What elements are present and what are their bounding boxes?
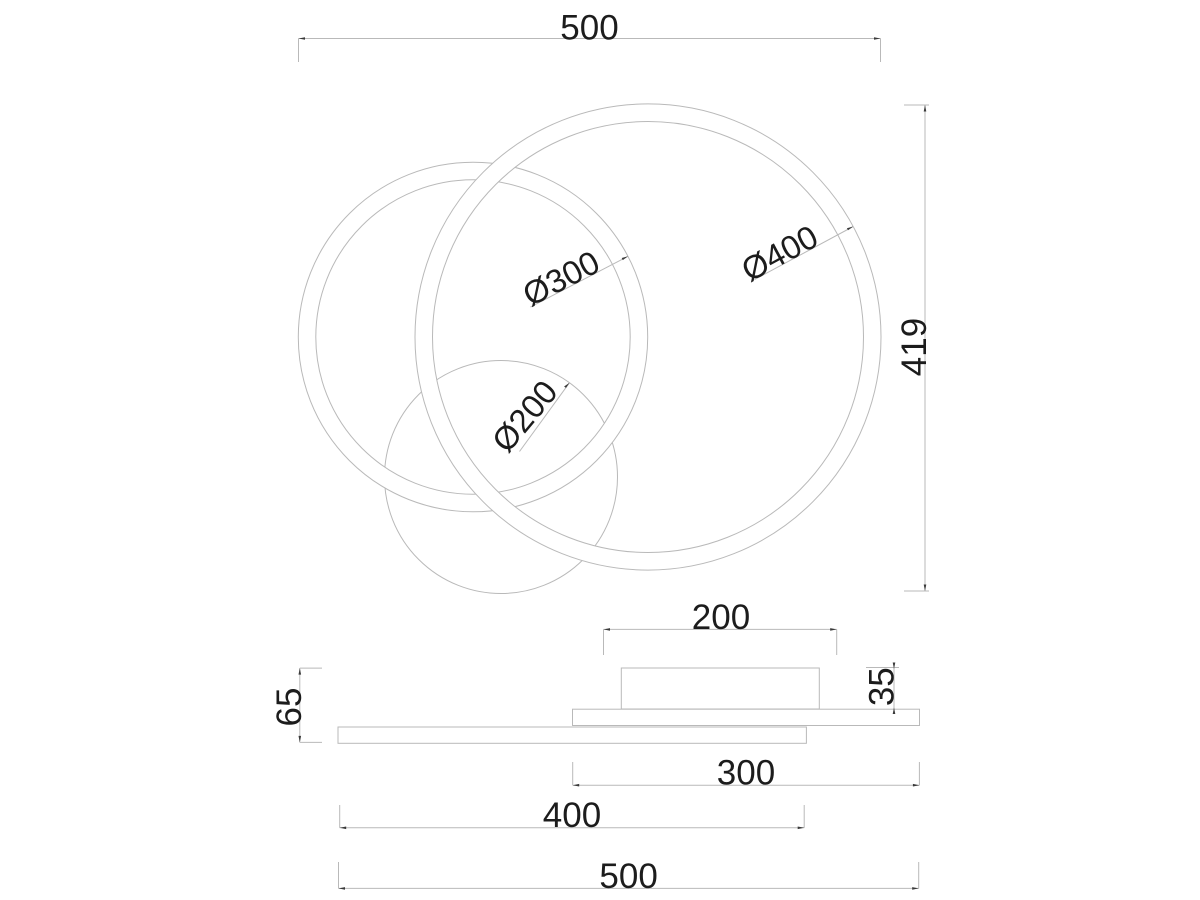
svg-text:500: 500 (560, 9, 618, 48)
svg-text:419: 419 (895, 318, 934, 376)
svg-text:400: 400 (543, 796, 601, 835)
svg-text:35: 35 (863, 667, 902, 706)
svg-text:300: 300 (717, 754, 775, 793)
svg-text:65: 65 (270, 688, 309, 727)
svg-text:200: 200 (692, 598, 750, 637)
svg-text:500: 500 (599, 857, 657, 896)
